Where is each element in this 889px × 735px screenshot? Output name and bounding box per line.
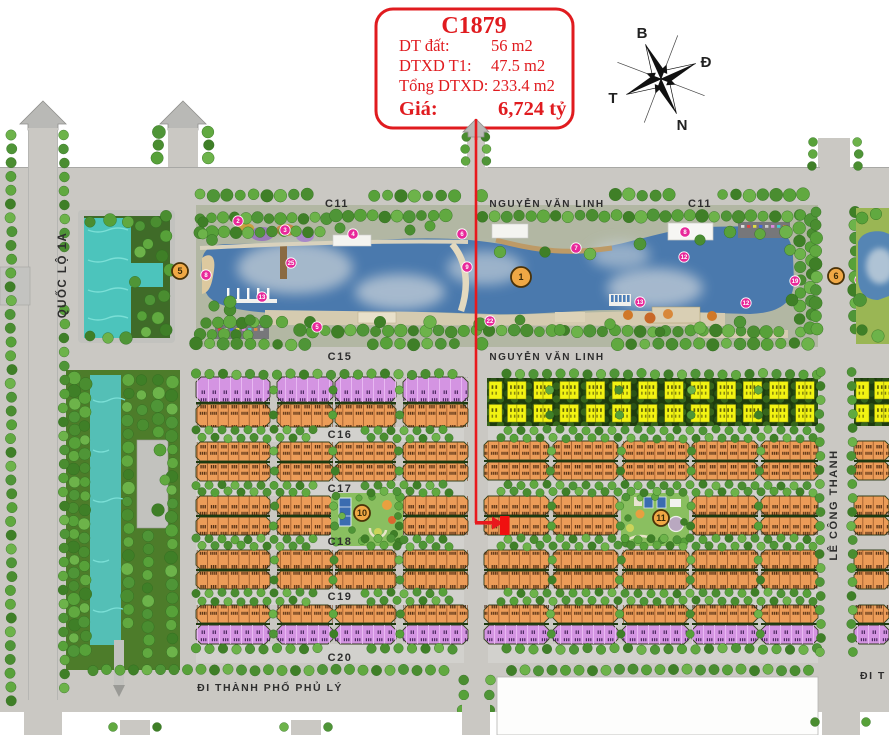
svg-text:13: 13 bbox=[259, 295, 266, 301]
svg-text:12: 12 bbox=[681, 255, 688, 261]
svg-text:B: B bbox=[637, 25, 648, 42]
svg-text:C11: C11 bbox=[325, 198, 349, 210]
svg-text:Giá:: Giá: bbox=[399, 98, 438, 120]
svg-text:6,724 tỷ: 6,724 tỷ bbox=[498, 98, 567, 120]
svg-text:ĐI THÀNH PHỐ PHỦ LÝ: ĐI THÀNH PHỐ PHỦ LÝ bbox=[197, 680, 343, 694]
svg-text:NGUYỄN VĂN LINH: NGUYỄN VĂN LINH bbox=[489, 350, 604, 363]
svg-text:22: 22 bbox=[487, 319, 494, 325]
svg-text:19: 19 bbox=[792, 279, 799, 285]
svg-text:DT đất:: DT đất: bbox=[399, 36, 450, 55]
svg-text:ĐI T: ĐI T bbox=[860, 670, 886, 682]
svg-text:C15: C15 bbox=[328, 351, 353, 363]
svg-text:C11: C11 bbox=[688, 198, 712, 210]
svg-text:QUỐC LỘ 1A: QUỐC LỘ 1A bbox=[55, 232, 69, 319]
svg-text:T: T bbox=[608, 90, 617, 107]
svg-text:NGUYỄN VĂN LINH: NGUYỄN VĂN LINH bbox=[489, 197, 604, 210]
svg-text:6: 6 bbox=[833, 271, 838, 281]
svg-text:11: 11 bbox=[656, 513, 666, 523]
svg-text:Đ: Đ bbox=[701, 54, 712, 71]
svg-text:13: 13 bbox=[637, 300, 644, 306]
svg-text:N: N bbox=[677, 117, 688, 134]
svg-text:C18: C18 bbox=[328, 536, 353, 548]
svg-text:47.5 m2: 47.5 m2 bbox=[491, 56, 545, 75]
svg-text:C17: C17 bbox=[328, 483, 353, 495]
svg-text:1: 1 bbox=[518, 272, 523, 282]
svg-text:5: 5 bbox=[177, 266, 182, 276]
svg-text:DTXD T1:: DTXD T1: bbox=[399, 56, 472, 75]
svg-text:12: 12 bbox=[743, 301, 750, 307]
svg-text:56 m2: 56 m2 bbox=[491, 36, 533, 55]
svg-text:Tổng DTXD: 233.4 m2: Tổng DTXD: 233.4 m2 bbox=[399, 76, 555, 95]
svg-text:25: 25 bbox=[288, 261, 295, 267]
svg-text:LÊ CÔNG THANH: LÊ CÔNG THANH bbox=[827, 449, 840, 560]
svg-text:C20: C20 bbox=[328, 652, 353, 664]
svg-text:C16: C16 bbox=[328, 429, 353, 441]
svg-text:C19: C19 bbox=[328, 591, 353, 603]
svg-text:10: 10 bbox=[357, 508, 367, 518]
